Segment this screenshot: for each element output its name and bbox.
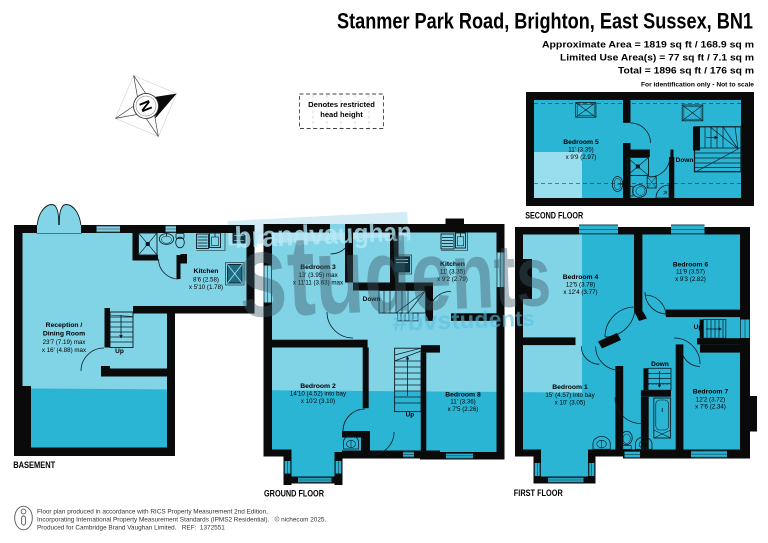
svg-text:x 9'3 (2.82): x 9'3 (2.82): [675, 276, 706, 283]
svg-text:14'10 (4.52) into bay: 14'10 (4.52) into bay: [290, 391, 347, 398]
svg-text:Up: Up: [115, 348, 124, 355]
svg-text:Bedroom 7: Bedroom 7: [693, 388, 729, 395]
svg-text:x 7'5 (2.26): x 7'5 (2.26): [448, 406, 479, 413]
svg-text:12'5 (3.78): 12'5 (3.78): [566, 282, 595, 289]
svg-text:Kitchen: Kitchen: [194, 268, 219, 275]
svg-text:x 16' (4.88) max: x 16' (4.88) max: [42, 347, 87, 354]
svg-text:12'2 (3.72): 12'2 (3.72): [696, 396, 725, 403]
svg-text:x 10' (3.05): x 10' (3.05): [555, 399, 586, 406]
svg-text:BASEMENT: BASEMENT: [13, 460, 55, 470]
svg-text:Bedroom 5: Bedroom 5: [563, 139, 599, 146]
svg-text:Dining Room: Dining Room: [43, 331, 85, 338]
svg-text:x 10'2 (3.10): x 10'2 (3.10): [301, 398, 335, 405]
svg-text:11' (3.36): 11' (3.36): [450, 399, 476, 406]
svg-text:x 7'6 (2.34): x 7'6 (2.34): [695, 404, 726, 411]
svg-text:Bedroom 2: Bedroom 2: [300, 383, 336, 390]
svg-text:Bedroom 4: Bedroom 4: [563, 274, 599, 281]
svg-text:8'6 (2.58): 8'6 (2.58): [193, 277, 219, 284]
svg-text:x 9'9 (2.97): x 9'9 (2.97): [566, 154, 597, 161]
svg-text:Total = 1896 sq ft / 176 sq m: Total = 1896 sq ft / 176 sq m: [618, 66, 754, 76]
svg-text:Bedroom 6: Bedroom 6: [673, 262, 709, 269]
svg-text:Stanmer Park Road, Brighton, E: Stanmer Park Road, Brighton, East Sussex…: [337, 9, 753, 34]
svg-text:Bedroom 8: Bedroom 8: [445, 392, 481, 399]
svg-text:11'9 (3.57): 11'9 (3.57): [676, 269, 705, 276]
svg-text:FIRST FLOOR: FIRST FLOOR: [514, 488, 563, 498]
svg-text:Incorporating International Pr: Incorporating International Property Mea…: [37, 516, 326, 524]
svg-text:Approximate Area = 1819 sq ft: Approximate Area = 1819 sq ft / 168.9 sq…: [542, 40, 754, 50]
svg-text:Produced for Cambridge Brand V: Produced for Cambridge Brand Vaughan Lim…: [37, 525, 225, 532]
svg-text:Floor plan produced in accorda: Floor plan produced in accordance with R…: [37, 509, 268, 516]
svg-text:Down: Down: [651, 361, 669, 368]
svg-text:Down: Down: [676, 157, 694, 164]
svg-text:x 5'10 (1.78): x 5'10 (1.78): [189, 284, 223, 291]
svg-text:Denotes restricted: Denotes restricted: [308, 100, 375, 109]
svg-text:15' (4.57) into bay: 15' (4.57) into bay: [545, 392, 595, 399]
svg-text:Limited Use Area(s) = 77 sq ft: Limited Use Area(s) = 77 sq ft / 7.1 sq …: [560, 53, 754, 63]
svg-text:Bedroom 1: Bedroom 1: [552, 384, 588, 391]
svg-text:GROUND FLOOR: GROUND FLOOR: [264, 488, 324, 498]
svg-text:11' (3.35): 11' (3.35): [568, 147, 594, 154]
svg-text:Up: Up: [406, 412, 415, 419]
svg-text:Up: Up: [694, 324, 703, 331]
svg-text:SECOND FLOOR: SECOND FLOOR: [525, 211, 583, 221]
svg-text:Reception /: Reception /: [46, 322, 83, 329]
svg-text:23'7 (7.19) max: 23'7 (7.19) max: [43, 339, 87, 346]
svg-text:For identification only - Not: For identification only - Not to scale: [641, 81, 755, 88]
svg-text:head height: head height: [320, 110, 363, 119]
svg-text:x 12'4 (3.77): x 12'4 (3.77): [563, 289, 597, 296]
